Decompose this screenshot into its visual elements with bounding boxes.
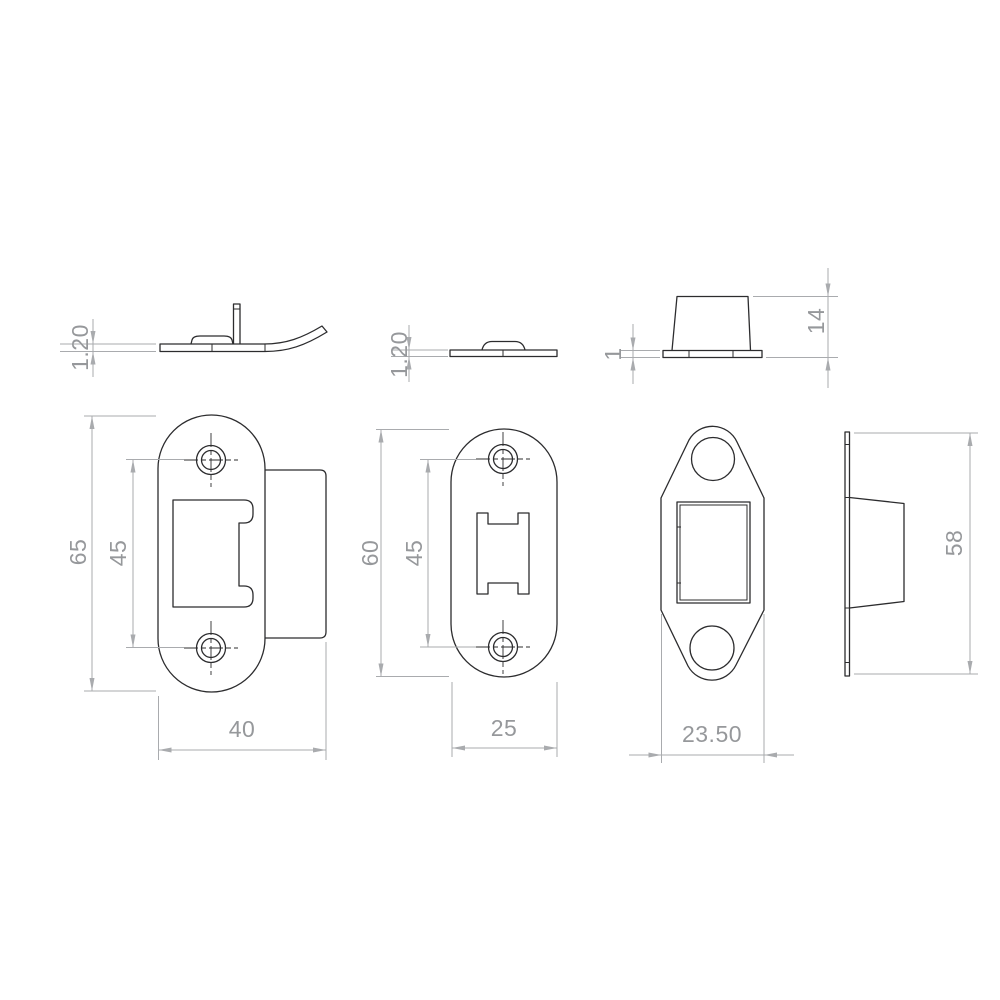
plate-profile	[160, 326, 327, 352]
keep-box-inner	[680, 505, 747, 600]
dim-thickness-label: 1.20	[386, 331, 412, 378]
arrowhead	[159, 748, 172, 753]
arrowhead	[968, 433, 973, 446]
arrowhead	[90, 416, 95, 429]
technical-drawing: 1.20 1.20 1 14	[0, 0, 1000, 1000]
arrowhead	[631, 358, 636, 371]
dim-width-label: 25	[491, 715, 518, 741]
dim-width-label: 40	[229, 716, 256, 742]
flange-profile	[663, 351, 762, 358]
dim-hole-pitch-label: 45	[401, 540, 427, 567]
arrowhead	[544, 746, 557, 751]
arrowhead	[649, 753, 662, 758]
view-box-keep-front: 23.50	[629, 426, 794, 763]
dimple-profile	[482, 342, 525, 351]
arrowhead	[764, 753, 777, 758]
box-profile	[850, 498, 905, 609]
arrowhead	[426, 634, 431, 647]
keep-box-outer	[677, 502, 750, 603]
arrowhead	[90, 678, 95, 691]
view-flat-strike-side: 1.20	[386, 325, 557, 382]
view-lip-strike-front: 65 45 40	[65, 415, 326, 760]
dim-flange-thickness-label: 1	[600, 347, 626, 360]
view-box-keep-profile: 58	[845, 432, 978, 676]
arrowhead	[131, 460, 136, 473]
arrowhead	[968, 661, 973, 674]
arrowhead	[452, 746, 465, 751]
dim-height-label: 65	[65, 539, 91, 566]
latch-cutout	[477, 513, 529, 594]
arrowhead	[379, 430, 384, 443]
dim-hole-pitch-label: 45	[105, 540, 131, 567]
dim-height-label: 58	[941, 530, 967, 557]
plate-outline	[451, 429, 557, 677]
dim-thickness-label: 1.20	[67, 324, 93, 371]
plate-outline	[158, 415, 265, 692]
view-lip-strike-side: 1.20	[60, 304, 327, 377]
view-box-keep-side: 1 14	[600, 268, 838, 388]
arrowhead	[631, 338, 636, 351]
view-flat-strike-front: 60 45 25	[357, 429, 557, 757]
box-profile	[672, 297, 751, 351]
flange-edge	[845, 432, 850, 676]
drawing-canvas: 1.20 1.20 1 14	[0, 0, 1000, 1000]
arrowhead	[313, 748, 326, 753]
arrowhead	[426, 460, 431, 473]
lip-box-outline	[265, 470, 326, 638]
dimple-profile	[191, 336, 233, 344]
dim-height-label: 60	[357, 540, 383, 567]
tab-pin	[234, 304, 241, 344]
dim-width-label: 23.50	[682, 721, 742, 747]
arrowhead	[826, 358, 831, 371]
latch-cutout	[173, 500, 253, 607]
screw-hole	[690, 626, 734, 670]
arrowhead	[826, 284, 831, 297]
arrowhead	[379, 664, 384, 677]
arrowhead	[131, 635, 136, 648]
dim-height-label: 14	[803, 308, 829, 335]
screw-hole	[692, 438, 735, 481]
